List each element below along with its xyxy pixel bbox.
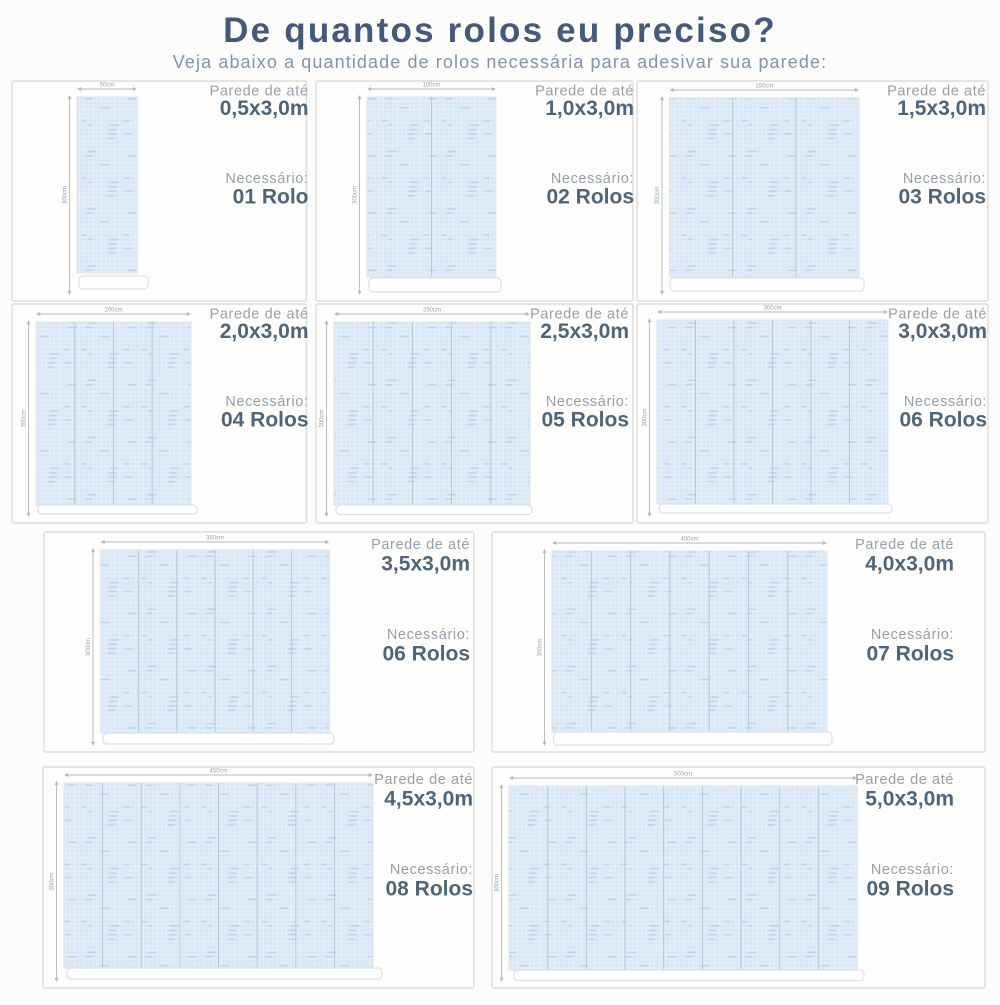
svg-text:Necessário:: Necessário: — [871, 627, 954, 643]
svg-text:300cm: 300cm — [763, 306, 781, 312]
svg-text:Parede de até: Parede de até — [371, 537, 470, 553]
svg-text:4,5x3,0m: 4,5x3,0m — [384, 788, 473, 811]
svg-text:300cm: 300cm — [63, 186, 69, 204]
svg-text:Necessário:: Necessário: — [387, 627, 470, 643]
svg-text:500cm: 500cm — [674, 772, 692, 778]
svg-text:3,5x3,0m: 3,5x3,0m — [381, 553, 470, 576]
svg-text:300cm: 300cm — [538, 638, 544, 656]
svg-text:04 Rolos: 04 Rolos — [221, 409, 309, 432]
svg-text:350cm: 350cm — [206, 536, 224, 542]
svg-text:Parede de até: Parede de até — [374, 772, 473, 788]
svg-text:3,0x3,0m: 3,0x3,0m — [898, 320, 987, 343]
svg-text:2,0x3,0m: 2,0x3,0m — [220, 320, 309, 343]
svg-text:02 Rolos: 02 Rolos — [546, 186, 634, 209]
svg-text:0,5x3,0m: 0,5x3,0m — [220, 97, 309, 120]
svg-text:300cm: 300cm — [655, 186, 661, 204]
svg-text:09 Rolos: 09 Rolos — [866, 878, 954, 901]
svg-text:450cm: 450cm — [209, 769, 227, 775]
svg-text:100cm: 100cm — [422, 83, 440, 89]
svg-text:Necessário:: Necessário: — [390, 862, 473, 878]
svg-text:De quantos rolos eu preciso?: De quantos rolos eu preciso? — [223, 11, 777, 50]
svg-text:1,5x3,0m: 1,5x3,0m — [897, 97, 986, 120]
svg-text:50cm: 50cm — [100, 83, 115, 89]
svg-text:1,0x3,0m: 1,0x3,0m — [545, 97, 634, 120]
svg-text:400cm: 400cm — [680, 537, 698, 543]
svg-text:06 Rolos: 06 Rolos — [899, 409, 987, 432]
svg-text:300cm: 300cm — [353, 186, 359, 204]
svg-text:300cm: 300cm — [320, 409, 326, 427]
svg-text:300cm: 300cm — [50, 872, 56, 890]
svg-text:300cm: 300cm — [495, 874, 501, 892]
svg-text:150cm: 150cm — [755, 84, 773, 90]
svg-text:5,0x3,0m: 5,0x3,0m — [865, 788, 954, 811]
svg-text:4,0x3,0m: 4,0x3,0m — [865, 553, 954, 576]
svg-text:06 Rolos: 06 Rolos — [382, 643, 470, 666]
svg-text:03 Rolos: 03 Rolos — [898, 186, 986, 209]
svg-text:2,5x3,0m: 2,5x3,0m — [540, 320, 629, 343]
svg-text:08 Rolos: 08 Rolos — [385, 878, 473, 901]
svg-text:300cm: 300cm — [86, 638, 92, 656]
svg-text:300cm: 300cm — [22, 409, 28, 427]
svg-text:250cm: 250cm — [423, 308, 441, 314]
svg-text:Parede de até: Parede de até — [855, 537, 954, 553]
svg-text:Veja abaixo a quantidade de ro: Veja abaixo a quantidade de rolos necess… — [173, 52, 827, 72]
svg-text:300cm: 300cm — [643, 408, 649, 426]
svg-text:200cm: 200cm — [104, 308, 122, 314]
svg-text:01 Rolo: 01 Rolo — [233, 186, 309, 209]
svg-text:Parede de até: Parede de até — [855, 772, 954, 788]
svg-text:Necessário:: Necessário: — [871, 862, 954, 878]
svg-text:07 Rolos: 07 Rolos — [866, 643, 954, 666]
svg-text:05 Rolos: 05 Rolos — [541, 409, 629, 432]
